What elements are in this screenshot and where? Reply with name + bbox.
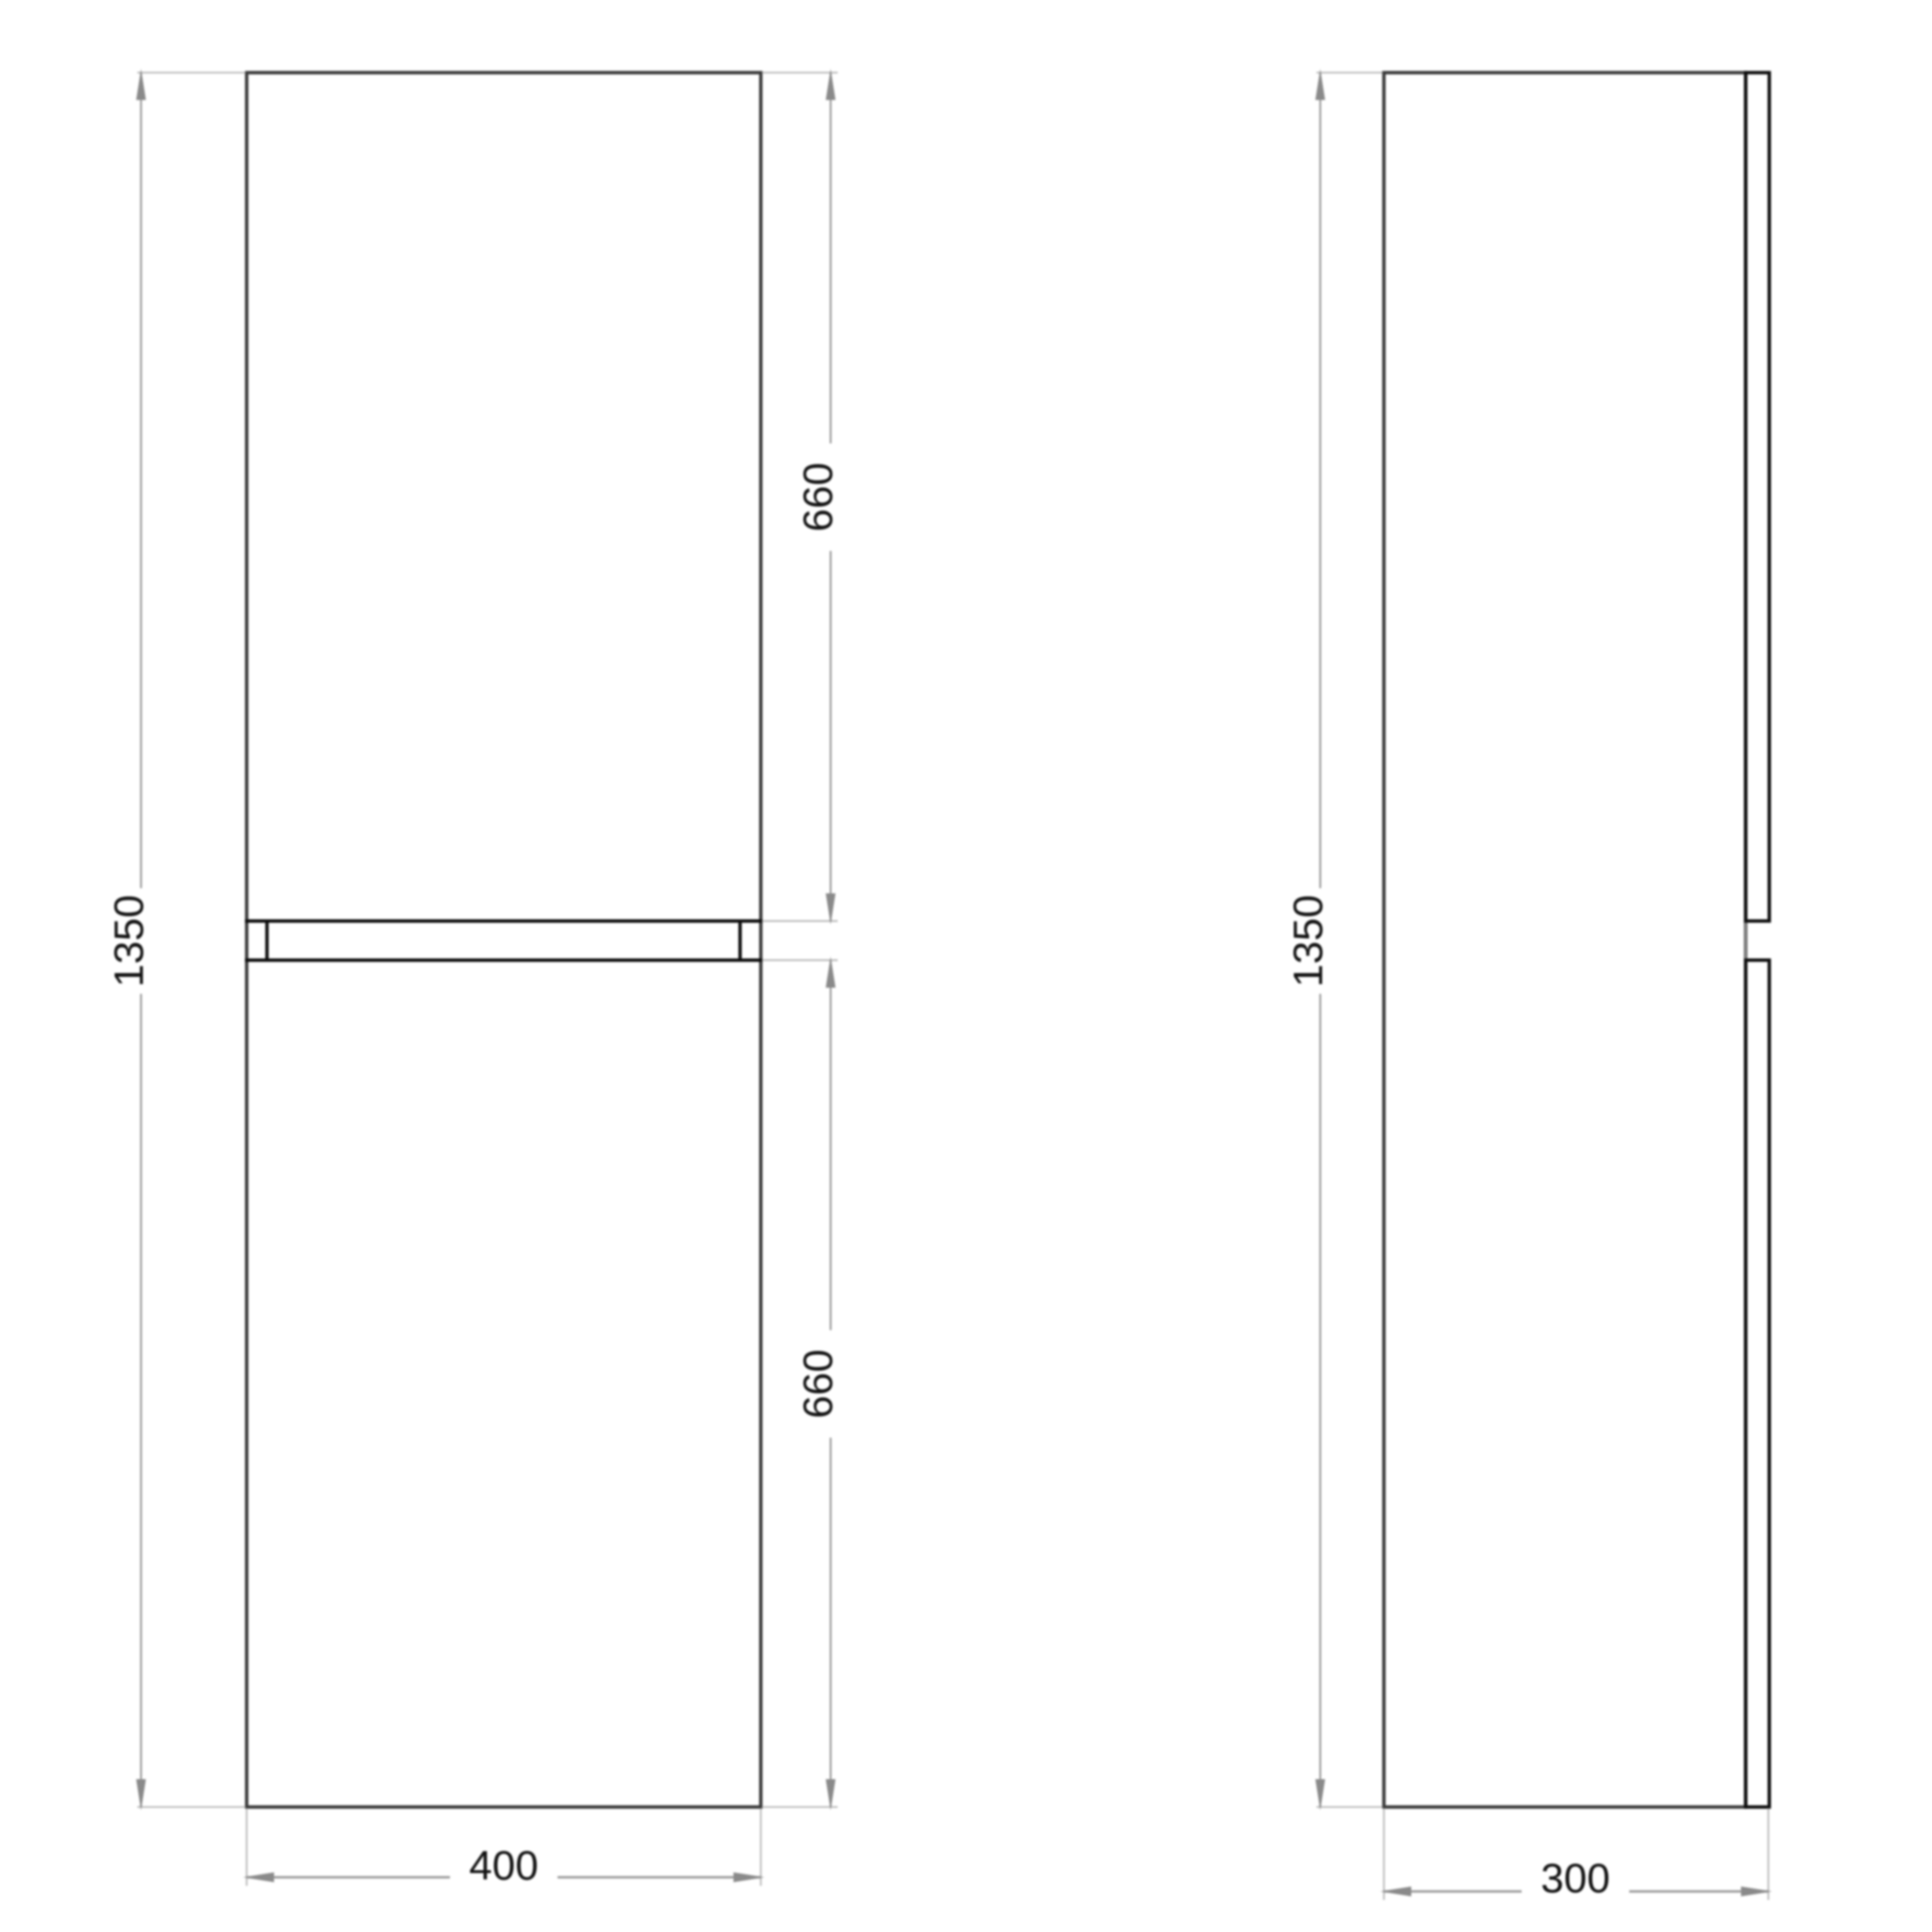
svg-text:1350: 1350 [1286,895,1332,988]
svg-text:400: 400 [469,1843,538,1890]
svg-text:300: 300 [1541,1856,1609,1902]
svg-text:660: 660 [795,1349,841,1418]
svg-text:1350: 1350 [107,895,153,988]
svg-text:660: 660 [795,462,841,531]
